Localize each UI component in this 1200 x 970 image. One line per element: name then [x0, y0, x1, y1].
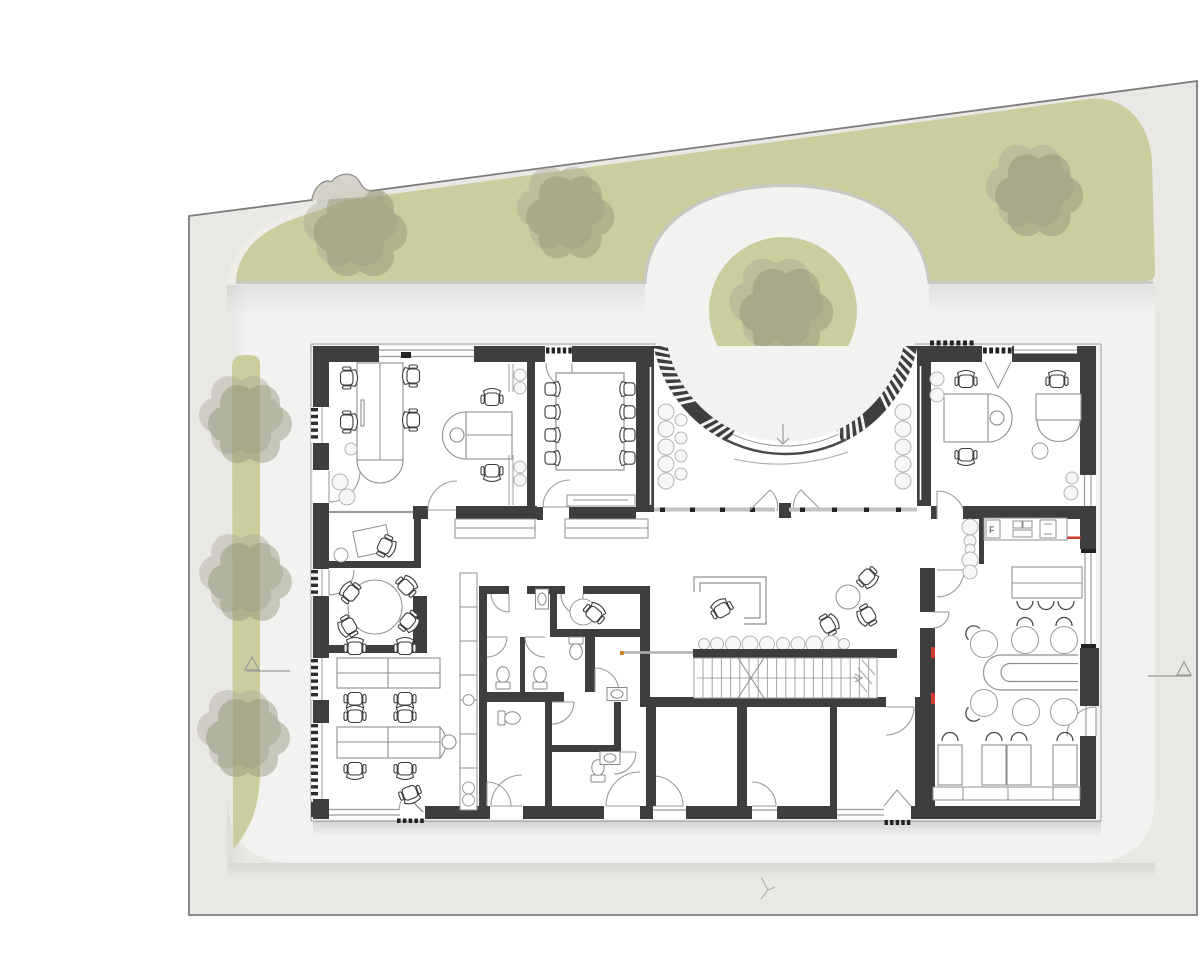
svg-text:F: F: [989, 525, 995, 535]
